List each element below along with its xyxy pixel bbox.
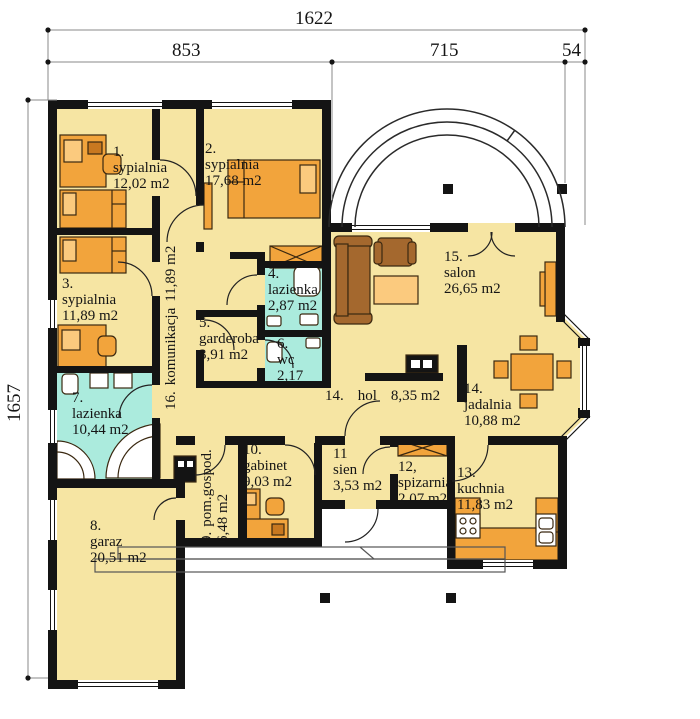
- room-label-10-gabinet: 10.gabinet9,03 m2: [243, 443, 292, 491]
- window: [48, 300, 57, 328]
- window: [212, 100, 292, 109]
- window: [483, 560, 533, 569]
- window: [48, 590, 57, 630]
- garage-door: [78, 680, 158, 689]
- sofa-icon: [334, 236, 372, 324]
- column: [443, 184, 453, 194]
- armchair-icon: [374, 238, 416, 266]
- room-label-3-sypialnia: 3.sypialnia11,89 m2: [62, 277, 118, 325]
- room-label-6-wc: 6.wc2,17: [277, 337, 303, 385]
- room-label-13-kuchnia: 13.kuchnia11,83 m2: [457, 466, 513, 514]
- boiler-icon: [174, 456, 196, 482]
- dimension-right-width: 715: [430, 40, 459, 62]
- room-label-1-sypialnia: 1.sypialnia12,02 m2: [113, 145, 170, 193]
- dimension-edge-width: 54: [562, 40, 581, 62]
- column: [320, 593, 330, 603]
- room-label-12-spizarnia: 12,spizarnia2,07 m2: [398, 460, 452, 508]
- room-label-16-komunikacja: 16.komunikacja11,89 m2: [164, 240, 180, 410]
- window: [88, 100, 162, 109]
- dimension-left-width: 853: [172, 40, 201, 62]
- floor-plan-page: 1622 853 715 54 1657 1.sypialnia12,02 m2…: [0, 0, 700, 719]
- room-label-2-sypialnia: 2.sypialnia17,68 m2: [205, 142, 262, 190]
- room-label-15-salon: 15.salon26,65 m2: [444, 250, 501, 298]
- fireplace-icon: [406, 355, 438, 373]
- room-label-14-jadalnia: 14.jadalnia10,88 m2: [464, 382, 521, 430]
- window: [48, 410, 57, 443]
- room-label-8-garaz: 8.garaz20,51 m2: [90, 519, 147, 567]
- room-label-14-hol: 14.hol8,35 m2: [325, 389, 454, 405]
- room-label-9-pom-gospod: 9.pom.gospod. 6,48 m2: [200, 444, 232, 543]
- column: [446, 593, 456, 603]
- conservatory-arcs: [329, 109, 565, 227]
- room-label-11-sien: 11sien3,53 m2: [333, 447, 382, 495]
- window: [48, 500, 57, 540]
- stove-icon: [456, 514, 480, 538]
- room-label-7-lazienka: 7.lazienka10,44 m2: [72, 391, 129, 439]
- bed-icon: [60, 237, 126, 273]
- room-label-5-garderoba: 5.garderoba3,91 m2: [199, 316, 259, 364]
- room-label-4-lazienka: 4.lazienka2,87 m2: [268, 267, 318, 315]
- bed-icon: [60, 190, 126, 228]
- coffee-table-icon: [374, 276, 418, 304]
- floor-plan-drawing: [0, 0, 700, 719]
- dimension-total-width: 1622: [295, 8, 333, 30]
- dimension-side-height: 1657: [4, 384, 26, 422]
- window: [352, 223, 430, 232]
